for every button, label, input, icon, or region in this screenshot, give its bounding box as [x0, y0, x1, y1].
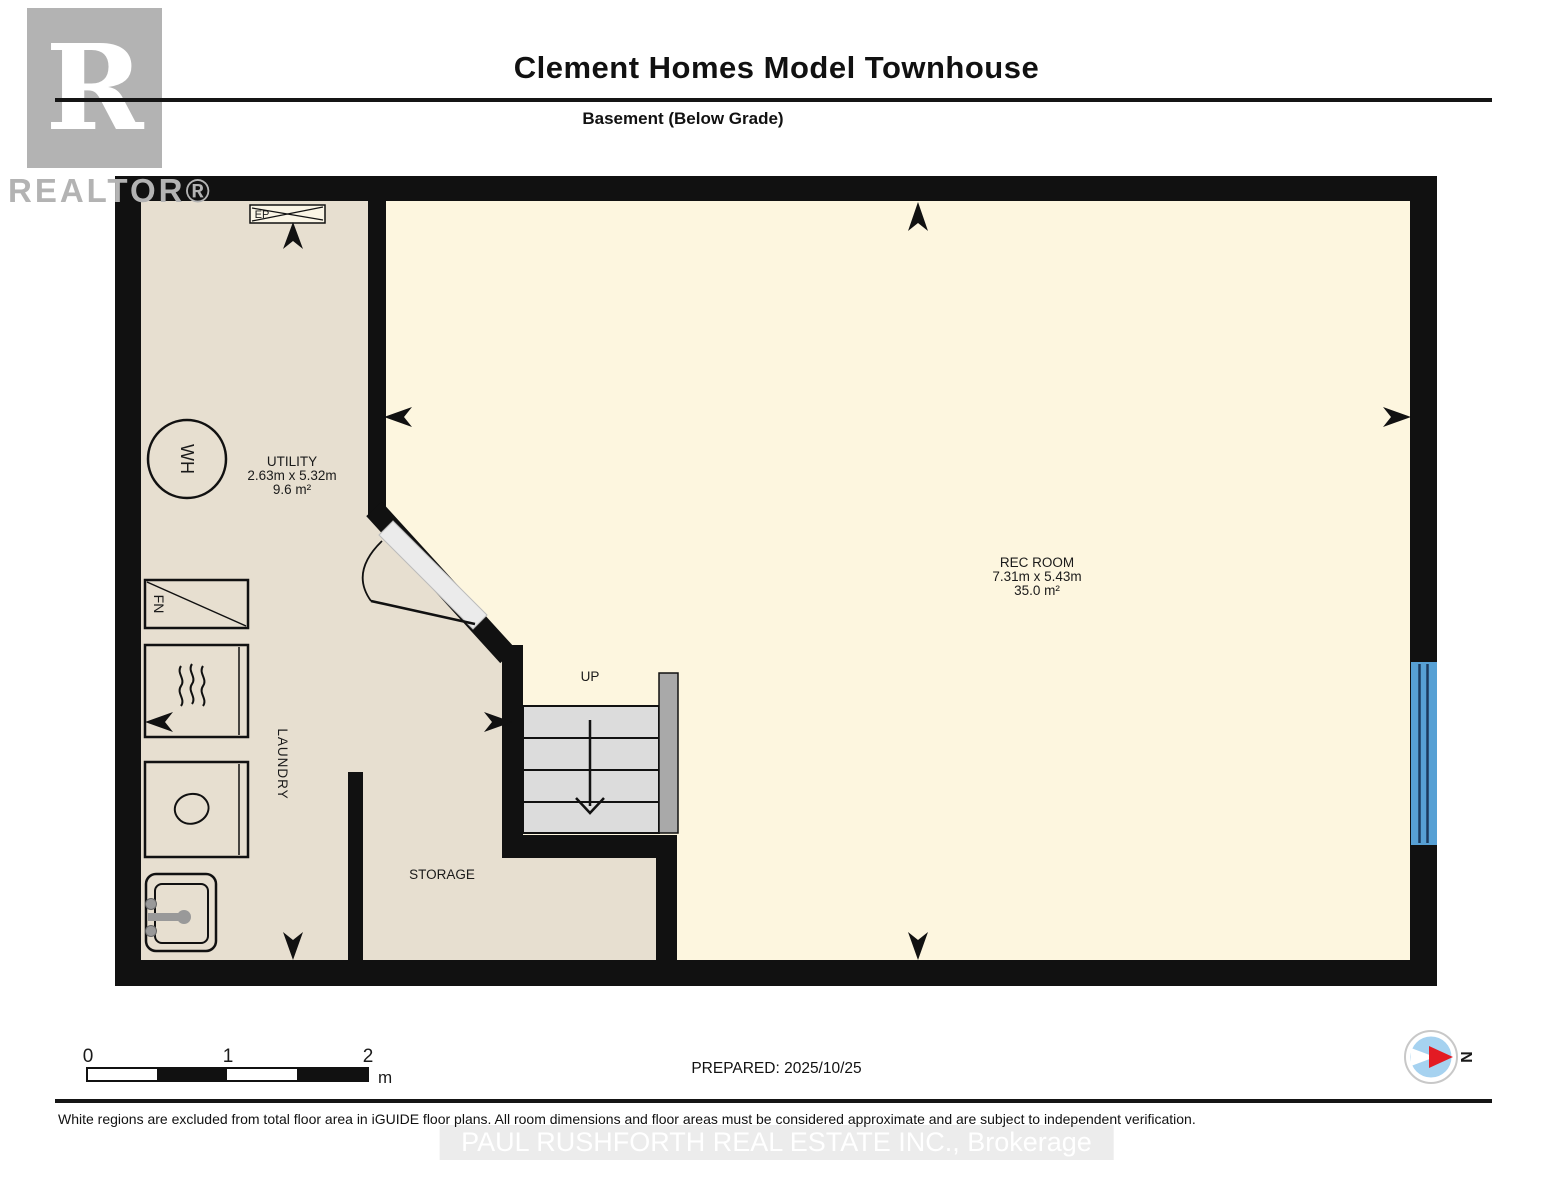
furnace-label: FN [151, 595, 167, 614]
window-glass [1411, 662, 1437, 845]
storage-name: STORAGE [409, 867, 475, 882]
wall-left [115, 176, 141, 986]
faucet-head [177, 910, 191, 924]
wall-storage-right [656, 847, 677, 962]
wall-stairs-left [502, 645, 523, 858]
electrical-panel-label: EP [255, 209, 270, 221]
floor-level-label: Basement (Below Grade) [0, 109, 1366, 129]
footer-divider [55, 1099, 1492, 1103]
utility-dimensions: 2.63m x 5.32m [247, 468, 336, 483]
utility-area: 9.6 m² [273, 482, 312, 497]
window [1411, 662, 1437, 845]
rec-room-dimensions: 7.31m x 5.43m [992, 569, 1081, 584]
brokerage-watermark: PAUL RUSHFORTH REAL ESTATE INC., Brokera… [439, 1125, 1114, 1160]
wall-utility [368, 201, 386, 517]
rec-room-name: REC ROOM [1000, 555, 1074, 570]
wall-bottom [115, 960, 1437, 986]
laundry-name: LAUNDRY [275, 728, 290, 799]
wall-laundry-storage [348, 772, 363, 962]
prepared-date: PREPARED: 2025/10/25 [0, 1060, 1553, 1078]
page-title: Clement Homes Model Townhouse [0, 50, 1553, 86]
water-heater-label: WH [177, 444, 197, 474]
faucet-handle [146, 899, 157, 910]
floor-plan-drawing: WH FN EP [0, 0, 1553, 1200]
electrical-panel-icon: EP [250, 205, 325, 223]
wall-right [1410, 176, 1437, 986]
stair-railing [659, 673, 678, 833]
realtor-wordmark: REALTOR® [8, 172, 213, 210]
rec-room-area: 35.0 m² [1014, 583, 1060, 598]
faucet-handle [146, 926, 157, 937]
title-divider [55, 98, 1492, 102]
floor-plan-page: { "header": { "title": "Clement Homes Mo… [0, 0, 1553, 1200]
utility-name: UTILITY [267, 454, 317, 469]
realtor-logo-letter: R [45, 29, 143, 147]
realtor-logo-icon: R [27, 8, 162, 168]
disclaimer-text: White regions are excluded from total fl… [58, 1111, 1196, 1127]
wall-top [115, 176, 1437, 201]
stairs-up-label: UP [581, 669, 600, 684]
wall-stairs-bottom [502, 835, 677, 858]
